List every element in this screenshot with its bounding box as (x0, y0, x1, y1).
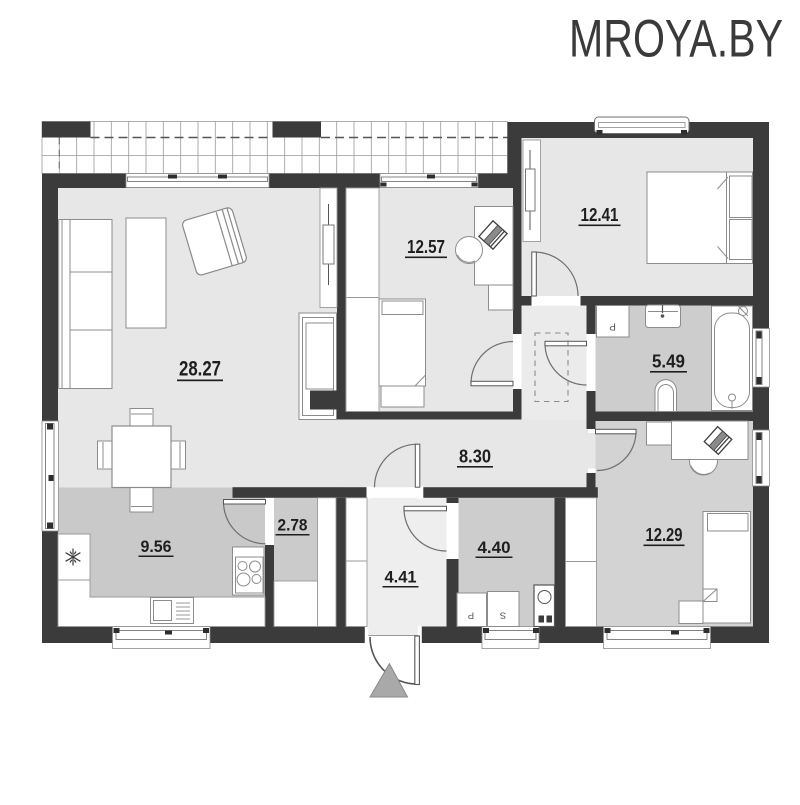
svg-text:MROYA.BY: MROYA.BY (569, 10, 783, 69)
svg-text:2.78: 2.78 (278, 516, 308, 535)
svg-text:P: P (609, 321, 616, 332)
svg-text:S: S (500, 610, 506, 621)
svg-text:9.56: 9.56 (141, 537, 172, 556)
svg-text:12.29: 12.29 (646, 524, 683, 545)
svg-text:P: P (468, 610, 474, 621)
svg-text:12.57: 12.57 (407, 236, 445, 257)
svg-text:12.41: 12.41 (581, 204, 619, 225)
svg-text:8.30: 8.30 (459, 447, 491, 467)
svg-text:4.41: 4.41 (385, 568, 417, 587)
svg-text:28.27: 28.27 (179, 358, 221, 381)
svg-text:4.40: 4.40 (478, 538, 511, 557)
svg-text:5.49: 5.49 (652, 352, 685, 372)
